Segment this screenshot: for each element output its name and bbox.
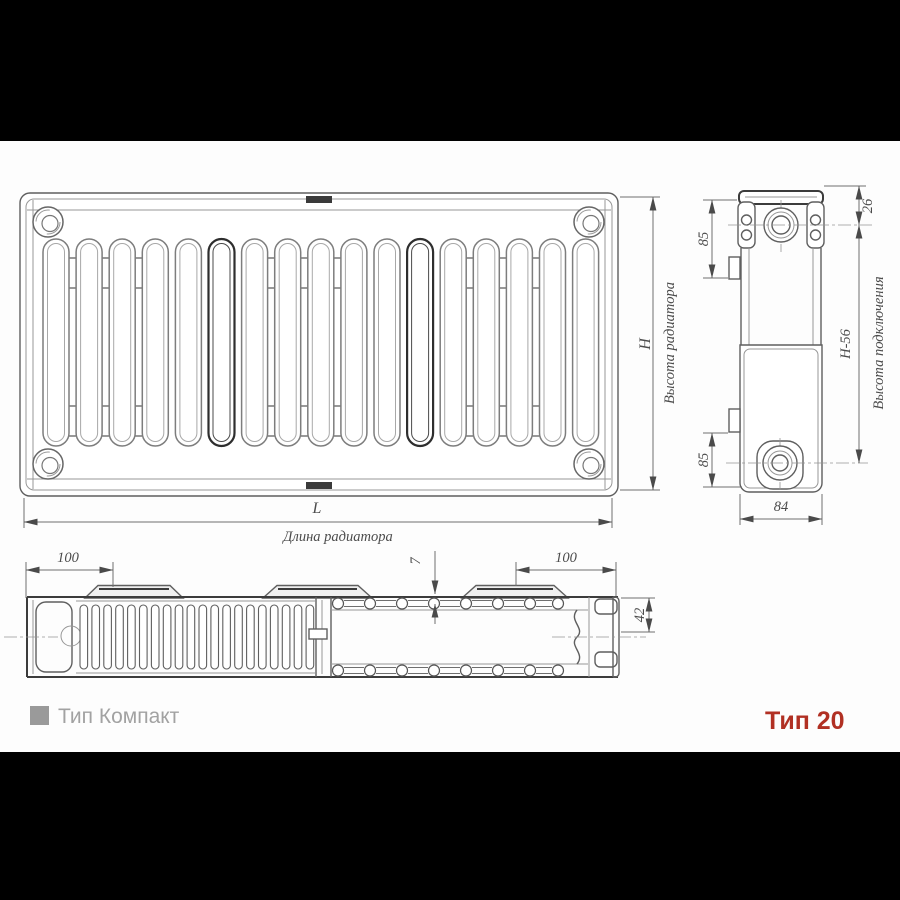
- dim-length-symbol: L: [312, 500, 322, 517]
- dim-length-name: Длина радиатора: [281, 529, 392, 545]
- dim-panel-gap: 7: [408, 557, 424, 565]
- dim-connection-name: Высота подключения: [871, 276, 887, 409]
- dim-depth: 84: [774, 499, 789, 515]
- dim-height-name: Высота радиатора: [662, 282, 678, 404]
- wall-bracket-bottom: [729, 409, 740, 432]
- top-bracket-mark: [306, 196, 332, 203]
- type-label: Тип 20: [765, 707, 845, 735]
- radiator-drawing: H Высота радиатора L Длина радиатора: [0, 0, 900, 900]
- letterbox-bottom: [0, 752, 900, 900]
- legend-square-icon: [30, 706, 49, 725]
- dim-height-symbol: H: [637, 337, 654, 351]
- dim-bracket-inset-left: 100: [57, 550, 80, 566]
- bottom-bracket-mark: [306, 482, 332, 489]
- dim-bracket-bottom-offset: 85: [696, 453, 712, 468]
- dim-end-spacing: 42: [632, 608, 648, 623]
- dim-bracket-top-offset: 85: [696, 232, 712, 247]
- panel-slats: [43, 239, 599, 446]
- dim-bracket-inset-right: 100: [555, 550, 578, 566]
- letterbox-top: [0, 0, 900, 141]
- dim-connection-value: H-56: [838, 328, 854, 360]
- front-view: [20, 193, 618, 496]
- dim-top-port-offset: 26: [860, 198, 876, 213]
- side-tab: [309, 629, 327, 639]
- series-label: Тип Компакт: [58, 705, 180, 728]
- technical-drawing-page: H Высота радиатора L Длина радиатора: [0, 0, 900, 900]
- wall-bracket-top: [729, 257, 740, 279]
